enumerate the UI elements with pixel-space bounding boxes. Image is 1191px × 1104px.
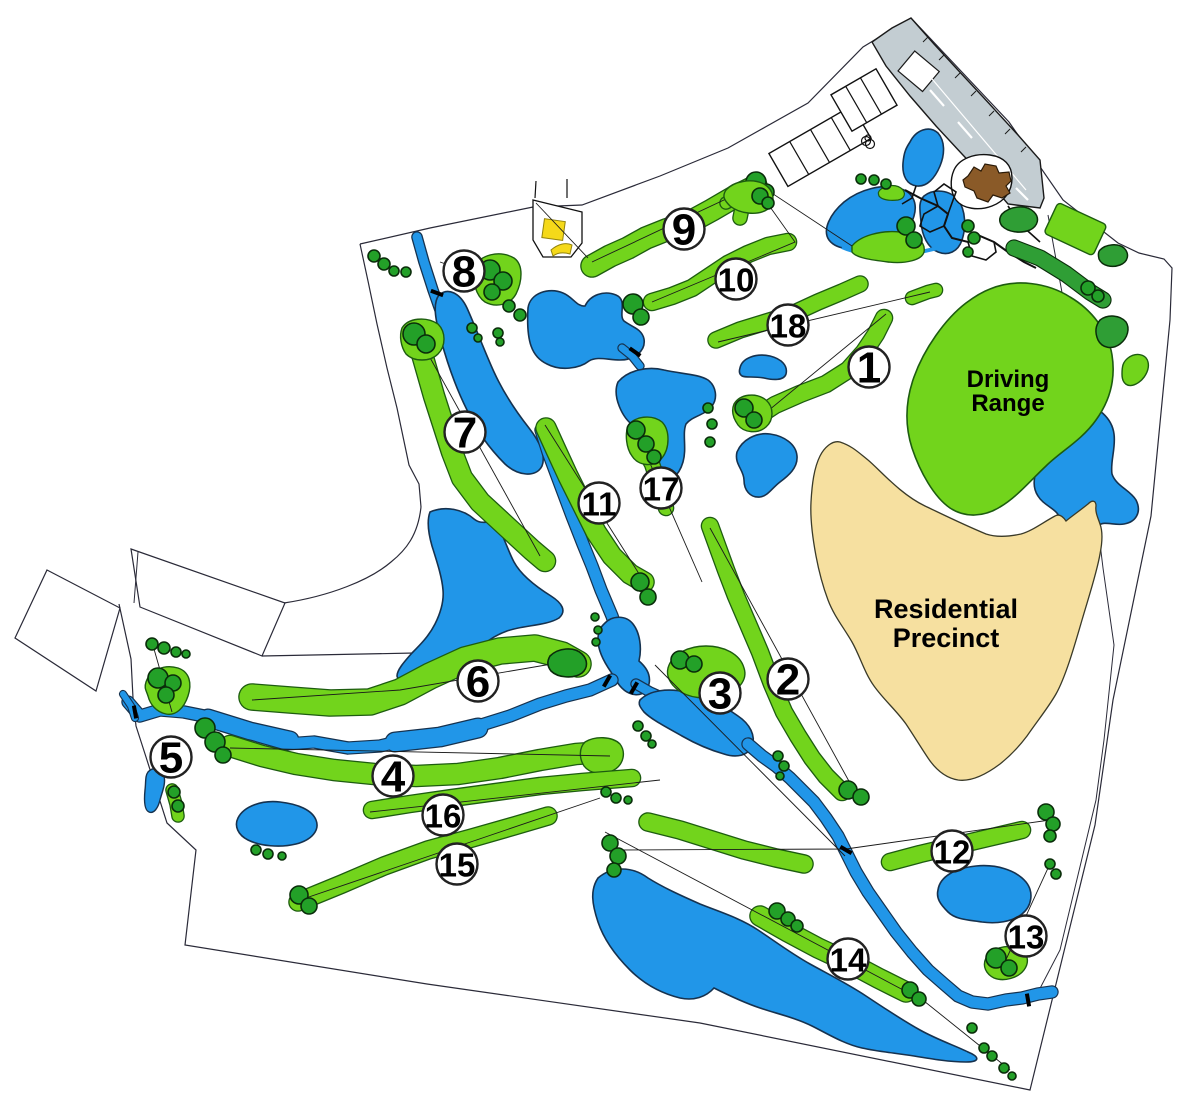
svg-text:6: 6 (466, 658, 490, 707)
svg-text:9: 9 (672, 206, 696, 255)
svg-text:1: 1 (857, 344, 881, 393)
svg-text:15: 15 (439, 847, 476, 884)
svg-text:11: 11 (582, 486, 617, 523)
svg-text:12: 12 (934, 834, 971, 871)
svg-text:3: 3 (708, 670, 732, 719)
svg-text:8: 8 (452, 248, 476, 297)
svg-text:Driving: Driving (967, 366, 1050, 393)
svg-text:18: 18 (770, 308, 807, 345)
svg-text:Precinct: Precinct (893, 623, 1000, 653)
svg-text:5: 5 (159, 734, 183, 783)
svg-text:14: 14 (830, 942, 867, 979)
svg-text:Range: Range (971, 390, 1044, 417)
svg-text:4: 4 (381, 753, 406, 802)
svg-text:13: 13 (1008, 919, 1045, 956)
svg-text:7: 7 (453, 409, 477, 458)
svg-text:2: 2 (776, 656, 800, 705)
svg-text:16: 16 (425, 798, 462, 835)
svg-text:Residential: Residential (874, 594, 1018, 624)
svg-text:10: 10 (718, 262, 755, 299)
svg-text:17: 17 (643, 471, 680, 508)
